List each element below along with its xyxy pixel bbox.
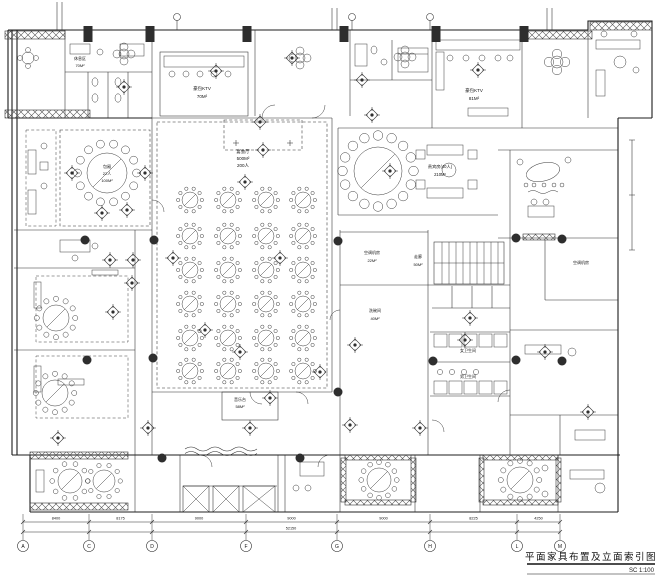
- round-table: [289, 291, 316, 317]
- round-table: [289, 358, 316, 384]
- elevation-index-marker: [197, 322, 213, 338]
- structural-column: [243, 26, 252, 42]
- structural-column: [84, 26, 93, 42]
- cloud-desk: [524, 159, 561, 185]
- structural-column: [429, 357, 438, 366]
- room-label-stage: 58M²: [235, 404, 245, 409]
- elevation-index-marker: [347, 337, 363, 353]
- dimension-value: 9000: [287, 517, 295, 521]
- round-table: [86, 463, 123, 498]
- elevation-index-marker: [242, 420, 258, 436]
- room-label-ktv_left: 豪包KTV: [193, 85, 211, 91]
- grid-axis-letter: F: [244, 544, 247, 550]
- round-table: [50, 462, 90, 501]
- round-table: [289, 325, 316, 351]
- elevation-index-marker: [382, 163, 398, 179]
- elevation-index-marker: [262, 390, 278, 406]
- elevation-index-marker: [119, 202, 135, 218]
- grid-axis-letter: M: [558, 544, 562, 550]
- room-label-banquet: 200人: [237, 163, 250, 168]
- elevator-bank: [183, 486, 275, 512]
- elevation-index-marker: [50, 430, 66, 446]
- elevation-index-marker: [94, 205, 110, 221]
- elevation-index-marker: [124, 275, 140, 291]
- room-label-vip_left: 100M²: [101, 178, 113, 183]
- stair: [434, 242, 504, 284]
- elevation-index-marker: [125, 252, 141, 268]
- floor-plan: 宴会厅500M²200人音乐台58M²豪包KTV70M²豪包KTV81M²休息区…: [0, 0, 660, 575]
- round-table: [214, 257, 241, 283]
- grid-axis-bubble: G: [332, 541, 343, 552]
- wc-stalls: [434, 334, 507, 394]
- structural-column: [334, 237, 343, 246]
- round-table: [33, 371, 77, 415]
- structural-column: [512, 234, 521, 243]
- room-label-vip_left: 包厢: [103, 163, 111, 169]
- round-table: [289, 187, 316, 213]
- room-label-ac_room_mid: 空调机房: [364, 249, 380, 255]
- grid-axis-bubble: A: [18, 541, 29, 552]
- elevation-index-marker: [364, 107, 380, 123]
- structural-column: [81, 236, 90, 245]
- round-table: [214, 223, 241, 249]
- structural-column: [150, 236, 159, 245]
- elevation-index-marker: [140, 420, 156, 436]
- structural-column: [158, 454, 167, 463]
- grid-axis-bubble: F: [241, 541, 252, 552]
- dimension-value: 8175: [116, 517, 124, 521]
- round-table: [34, 296, 78, 340]
- round-table: [176, 358, 203, 384]
- round-table: [289, 257, 316, 283]
- elevation-index-marker: [137, 165, 153, 181]
- dimension-value: 4250: [534, 517, 542, 521]
- elevation-index-marker: [342, 417, 358, 433]
- dimension-total: 52150: [286, 527, 297, 531]
- room-label-stage: 音乐台: [234, 396, 246, 402]
- plan-linework: 宴会厅500M²200人音乐台58M²豪包KTV70M²豪包KTV81M²休息区…: [5, 2, 652, 552]
- round-table: [252, 325, 279, 351]
- round-table: [176, 223, 203, 249]
- title-block: 平面家具布置及立面索引图 SC 1:100: [525, 551, 657, 574]
- grid-axis-bubble: C: [84, 541, 95, 552]
- stage-lower: [222, 392, 278, 420]
- round-table: [214, 358, 241, 384]
- round-table: [176, 187, 203, 213]
- toilet-fixtures: [92, 78, 121, 102]
- room-label-corridor: 走廊: [414, 253, 422, 259]
- room-label-dishwash: 40M²: [370, 316, 380, 321]
- grid-axis-bubble: M: [555, 541, 566, 552]
- elevation-index-marker: [412, 420, 428, 436]
- round-table: [338, 131, 419, 212]
- elevation-index-marker: [580, 404, 596, 420]
- dimension-value: 8225: [469, 517, 477, 521]
- structural-column: [558, 357, 567, 366]
- room-label-corridor: 50M²: [413, 262, 423, 267]
- room-label-vip_left: 22人: [103, 171, 111, 176]
- elevation-index-marker: [116, 79, 132, 95]
- grid-axis-bubble: D: [147, 541, 158, 552]
- structural-column: [512, 356, 521, 365]
- room-label-wc_women: 女卫生间: [460, 347, 476, 353]
- structural-column: [432, 26, 441, 42]
- round-table: [176, 291, 203, 317]
- room-label-banquet: 宴会厅: [236, 148, 250, 155]
- elevation-index-marker: [232, 344, 248, 360]
- grid-axis-letter: G: [335, 544, 339, 550]
- grid-axis-bubble: L: [512, 541, 523, 552]
- structural-column: [146, 26, 155, 42]
- elevation-index-marker: [102, 252, 118, 268]
- elevation-index-marker: [105, 304, 121, 320]
- grid-axis-letter: D: [150, 544, 154, 550]
- round-table: [252, 223, 279, 249]
- round-table: [214, 187, 241, 213]
- elevation-index-marker: [462, 310, 478, 326]
- round-table: [498, 458, 542, 502]
- elevation-index-marker: [354, 72, 370, 88]
- structural-column: [558, 235, 567, 244]
- round-table: [252, 291, 279, 317]
- room-label-ac_room_mid: 22M²: [367, 258, 377, 263]
- elevation-index-marker: [284, 50, 300, 66]
- structural-column: [83, 356, 92, 365]
- dimension-value: 9000: [379, 517, 387, 521]
- round-table: [214, 291, 241, 317]
- round-table: [214, 325, 241, 351]
- grid-axis-letter: A: [21, 544, 25, 550]
- structural-column: [340, 26, 349, 42]
- grid-axis-letter: H: [428, 544, 432, 550]
- ktv-left-room: [160, 52, 248, 116]
- grid-axis-bubble: H: [425, 541, 436, 552]
- drawing-scale: SC 1:100: [629, 568, 655, 574]
- room-label-vip_right: 210M²: [434, 172, 446, 177]
- elevation-index-marker: [457, 332, 473, 348]
- elevation-index-marker: [272, 250, 288, 266]
- room-label-lounge: 休息区: [74, 55, 86, 61]
- round-table: [289, 223, 316, 249]
- round-table: [252, 257, 279, 283]
- elevation-index-marker: [537, 344, 553, 360]
- round-table: [359, 460, 399, 500]
- round-table: [176, 257, 203, 283]
- round-table: [176, 325, 203, 351]
- dimension-value: 8400: [52, 517, 60, 521]
- elevation-index-marker: [237, 174, 253, 190]
- structural-column: [334, 388, 343, 397]
- round-table: [252, 187, 279, 213]
- drawing-title: 平面家具布置及立面索引图: [525, 551, 657, 563]
- room-label-banquet: 500M²: [237, 156, 250, 161]
- room-label-ktv_right: 81M²: [469, 96, 480, 101]
- room-label-ktv_left: 70M²: [197, 94, 208, 99]
- room-label-lounge: 70M²: [75, 63, 85, 68]
- structural-column: [149, 354, 158, 363]
- elevation-index-marker: [255, 142, 271, 158]
- room-label-ac_room_right: 空调机房: [573, 259, 589, 265]
- round-table: [252, 358, 279, 384]
- grid-axis-letter: L: [516, 544, 519, 550]
- elevation-index-marker: [252, 114, 268, 130]
- dimension-value: 9000: [195, 517, 203, 521]
- floor-plan-canvas: 宴会厅500M²200人音乐台58M²豪包KTV70M²豪包KTV81M²休息区…: [0, 0, 660, 575]
- grid-axis-letter: C: [87, 544, 91, 550]
- room-label-ktv_right: 豪包KTV: [465, 87, 483, 93]
- elevation-index-marker: [208, 63, 224, 79]
- dimension-strip: A8400C8175D9000F9000G9000H8225L4250M5215…: [18, 514, 566, 552]
- room-label-wc_men: 男卫生间: [460, 373, 476, 379]
- room-label-dishwash: 洗碗间: [369, 307, 381, 313]
- elevation-index-marker: [470, 62, 486, 78]
- structural-column: [520, 26, 529, 42]
- room-label-vip_right: 贵宾房(40人): [428, 163, 453, 170]
- elevation-index-marker: [64, 165, 80, 181]
- structural-column: [296, 454, 305, 463]
